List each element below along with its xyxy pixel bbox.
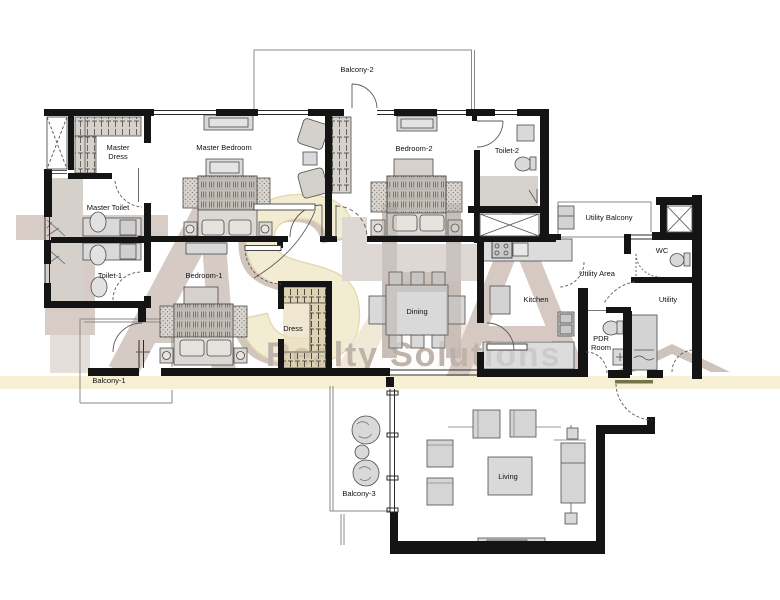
svg-text:Bedroom-1: Bedroom-1 bbox=[185, 271, 222, 280]
svg-text:Balcony-1: Balcony-1 bbox=[92, 376, 125, 385]
svg-text:Dress: Dress bbox=[283, 324, 303, 333]
svg-text:Master Toilet: Master Toilet bbox=[87, 203, 130, 212]
svg-text:Master: Master bbox=[107, 143, 130, 152]
svg-text:Toilet-1: Toilet-1 bbox=[98, 271, 122, 280]
svg-text:WC: WC bbox=[656, 246, 669, 255]
svg-text:Living: Living bbox=[498, 472, 518, 481]
svg-text:Dress: Dress bbox=[108, 152, 128, 161]
svg-text:PDR: PDR bbox=[593, 334, 609, 343]
svg-text:Room: Room bbox=[591, 343, 611, 352]
svg-text:Dining: Dining bbox=[406, 307, 427, 316]
svg-text:Utility: Utility bbox=[659, 295, 678, 304]
svg-text:Bedroom-2: Bedroom-2 bbox=[395, 144, 432, 153]
svg-text:Master Bedroom: Master Bedroom bbox=[196, 143, 251, 152]
svg-text:Balcony-2: Balcony-2 bbox=[340, 65, 373, 74]
svg-text:Utility Balcony: Utility Balcony bbox=[585, 213, 632, 222]
svg-text:Kitchen: Kitchen bbox=[523, 295, 548, 304]
svg-text:Balcony-3: Balcony-3 bbox=[342, 489, 375, 498]
svg-text:Toilet-2: Toilet-2 bbox=[495, 146, 519, 155]
svg-text:Utility Area: Utility Area bbox=[579, 269, 616, 278]
